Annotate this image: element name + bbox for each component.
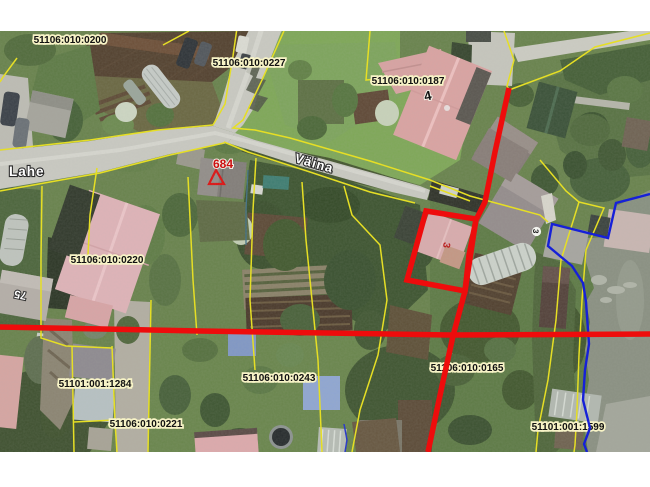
svg-text:51106:010:0221: 51106:010:0221 (110, 419, 183, 430)
svg-text:51106:010:0227: 51106:010:0227 (213, 58, 286, 69)
svg-text:51101:001:1599: 51101:001:1599 (532, 422, 605, 433)
svg-text:51101:001:1284: 51101:001:1284 (59, 379, 132, 390)
svg-text:51106:010:0200: 51106:010:0200 (34, 35, 107, 46)
svg-text:684: 684 (213, 157, 233, 171)
svg-text:51106:010:0243: 51106:010:0243 (243, 373, 316, 384)
svg-text:Lahe: Lahe (9, 164, 45, 179)
svg-text:75: 75 (13, 287, 27, 301)
svg-text:51106:010:0187: 51106:010:0187 (372, 76, 445, 87)
svg-text:51106:010:0220: 51106:010:0220 (71, 255, 144, 266)
svg-text:51106:010:0165: 51106:010:0165 (431, 363, 504, 374)
